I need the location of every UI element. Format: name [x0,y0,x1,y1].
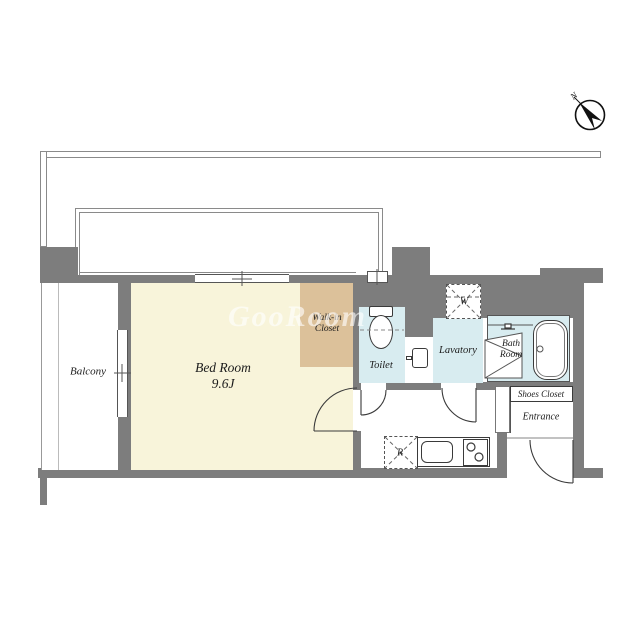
toilet-door [361,390,386,415]
wall-entrance-stub [497,433,507,468]
washbasin-handle [406,356,412,360]
entrance-closet-strip [495,386,510,433]
refrigerator-label: R [397,447,403,459]
entrance-label: Entrance [523,411,560,423]
inner-boundary-inner [79,212,379,275]
outer-boundary-top [40,151,601,158]
washbasin [412,348,428,368]
toilet-window [367,271,388,283]
lavatory-door [442,388,476,422]
wall-top-right [540,268,603,283]
walkin-closet-label: Walk-in Closet [312,313,341,335]
walkin-closet-line2: Closet [315,324,339,334]
lavatory-door-opening [441,383,476,390]
bedroom-label: Bed Room [195,360,251,376]
compass-north-label: N [568,90,579,102]
bedroom-north-window [195,274,289,283]
inner-boundary-bottom-line [79,272,356,273]
toilet-bowl [369,315,393,349]
compass-icon [574,97,605,130]
wall-right [573,283,584,478]
washer-label: W [460,296,468,308]
lavatory-label: Lavatory [439,345,477,357]
entrance-door [530,440,573,483]
balcony-label: Balcony [70,366,106,379]
bathtub-inner [536,323,565,377]
wall-bedroom-east-lower [353,431,361,470]
wall-top-main [78,275,543,283]
toilet-door-opening [361,383,386,390]
wall-pillar-center [392,247,430,277]
outer-boundary-left [40,151,47,247]
bedroom-west-window [117,330,128,417]
floor-plan: Balcony Bed Room 9.6J Walk-in Closet Toi… [0,0,640,640]
kitchen-sink [421,441,453,463]
bathroom-line1: Bath [502,339,520,349]
balcony-drain-line [58,283,59,470]
bathroom-line2: Room [500,350,522,360]
wall-bottom-right-stub [573,468,603,478]
bathroom-label: Bath Room [500,339,522,361]
wall-pillar-left [40,247,78,283]
toilet-label: Toilet [369,360,393,372]
bedroom-size-label: 9.6J [212,376,235,392]
shoes-closet-label: Shoes Closet [518,389,564,399]
wall-left-drop [40,468,47,505]
kitchen-stove [463,439,488,466]
walkin-closet-line1: Walk-in [312,313,341,323]
